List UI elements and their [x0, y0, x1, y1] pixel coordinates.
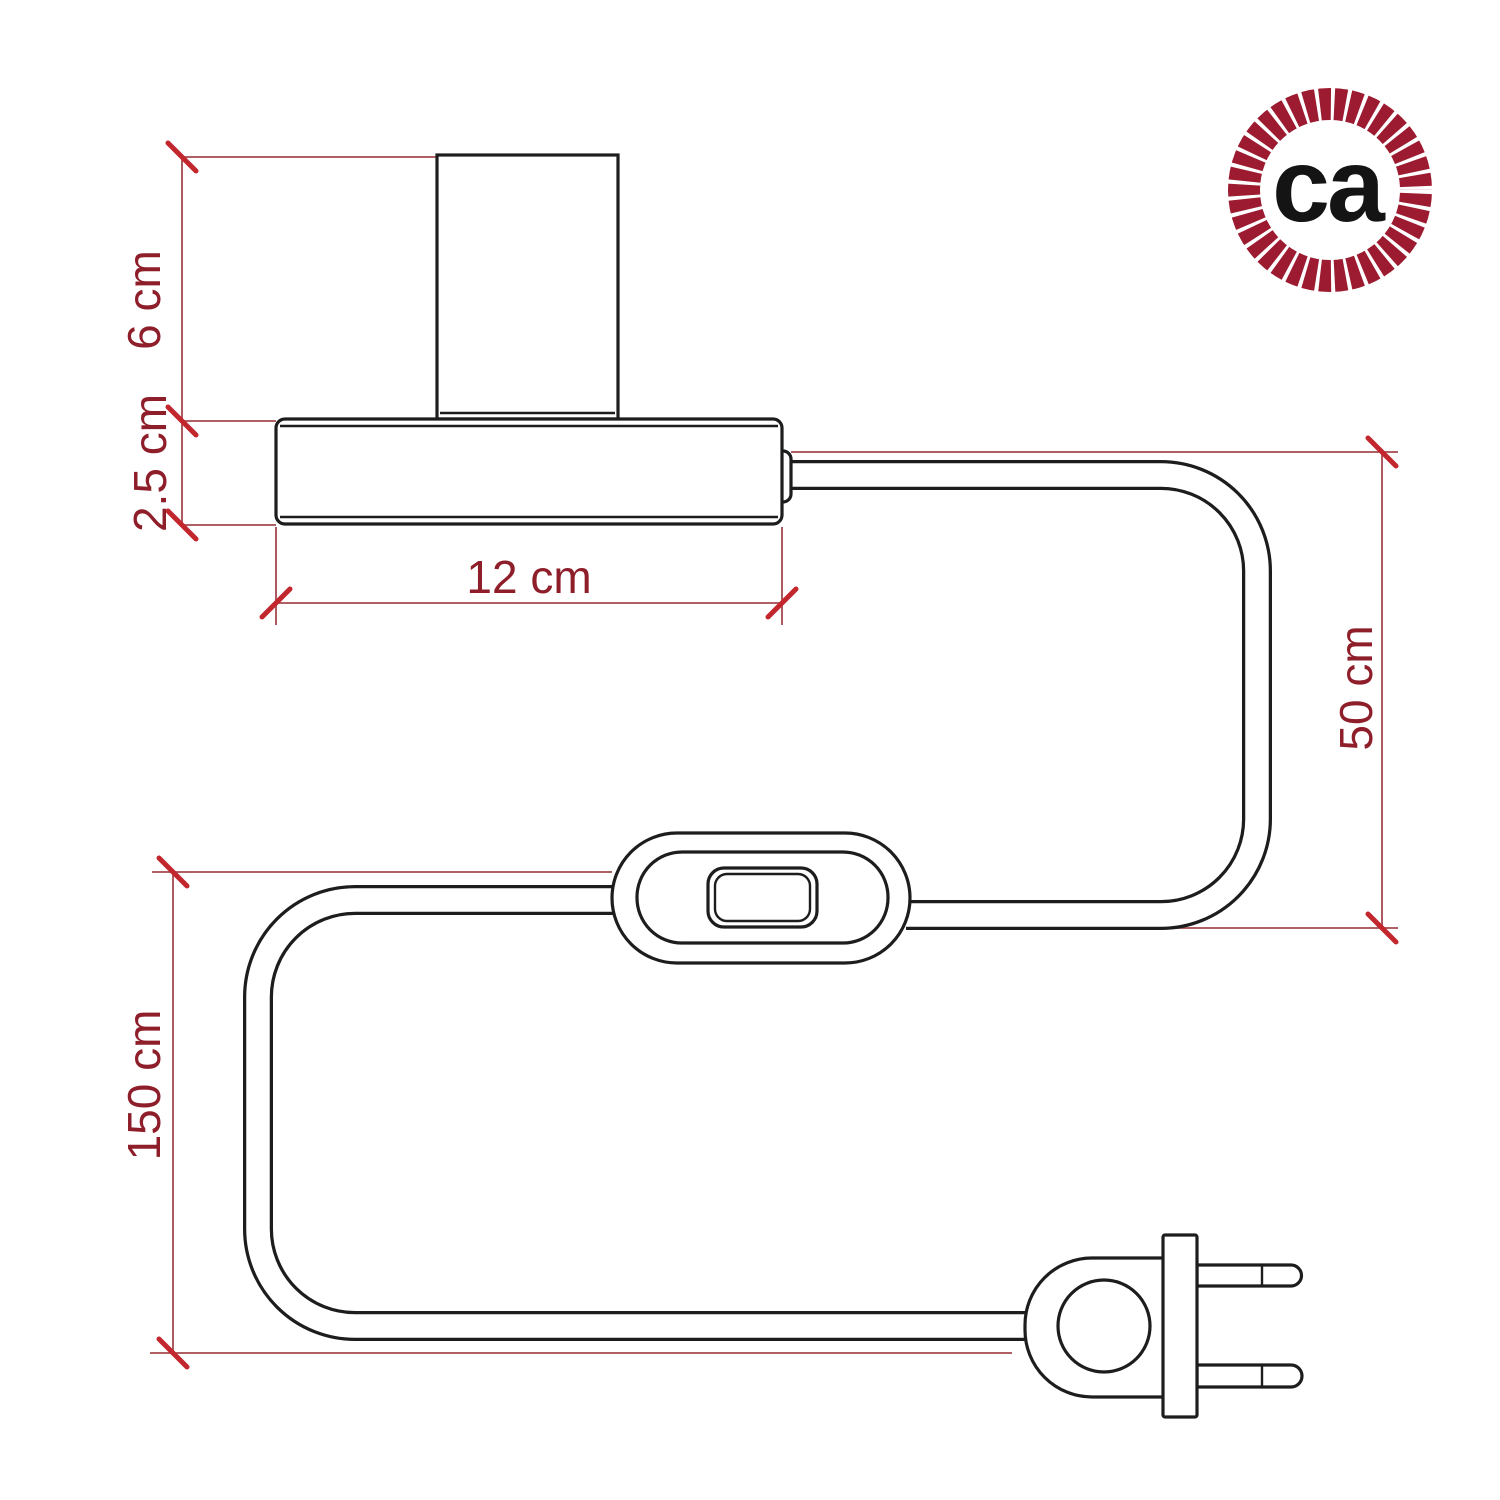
lamp-base: [276, 419, 782, 524]
dim-label-150cm: 150 cm: [121, 1010, 167, 1161]
dim-label-2-5cm: 2.5 cm: [127, 394, 173, 532]
logo-ca-text: ca: [1272, 134, 1382, 238]
plug-face-plate: [1163, 1235, 1197, 1417]
dim-label-50cm: 50 cm: [1333, 625, 1379, 750]
dim-label-6cm: 6 cm: [121, 250, 167, 350]
dimension-diagram: 6 cm 2.5 cm 12 cm 50 cm 150 cm ca: [0, 0, 1500, 1500]
inline-switch: [612, 833, 910, 963]
dim-label-12cm: 12 cm: [466, 554, 591, 600]
lamp-holder: [437, 155, 618, 419]
plug-prong-bottom: [1197, 1365, 1302, 1387]
cable-switch-to-plug: [258, 900, 1042, 1326]
plug: [1025, 1235, 1302, 1417]
dimension-lines: [150, 143, 1398, 1367]
plug-prong-top: [1197, 1265, 1302, 1286]
